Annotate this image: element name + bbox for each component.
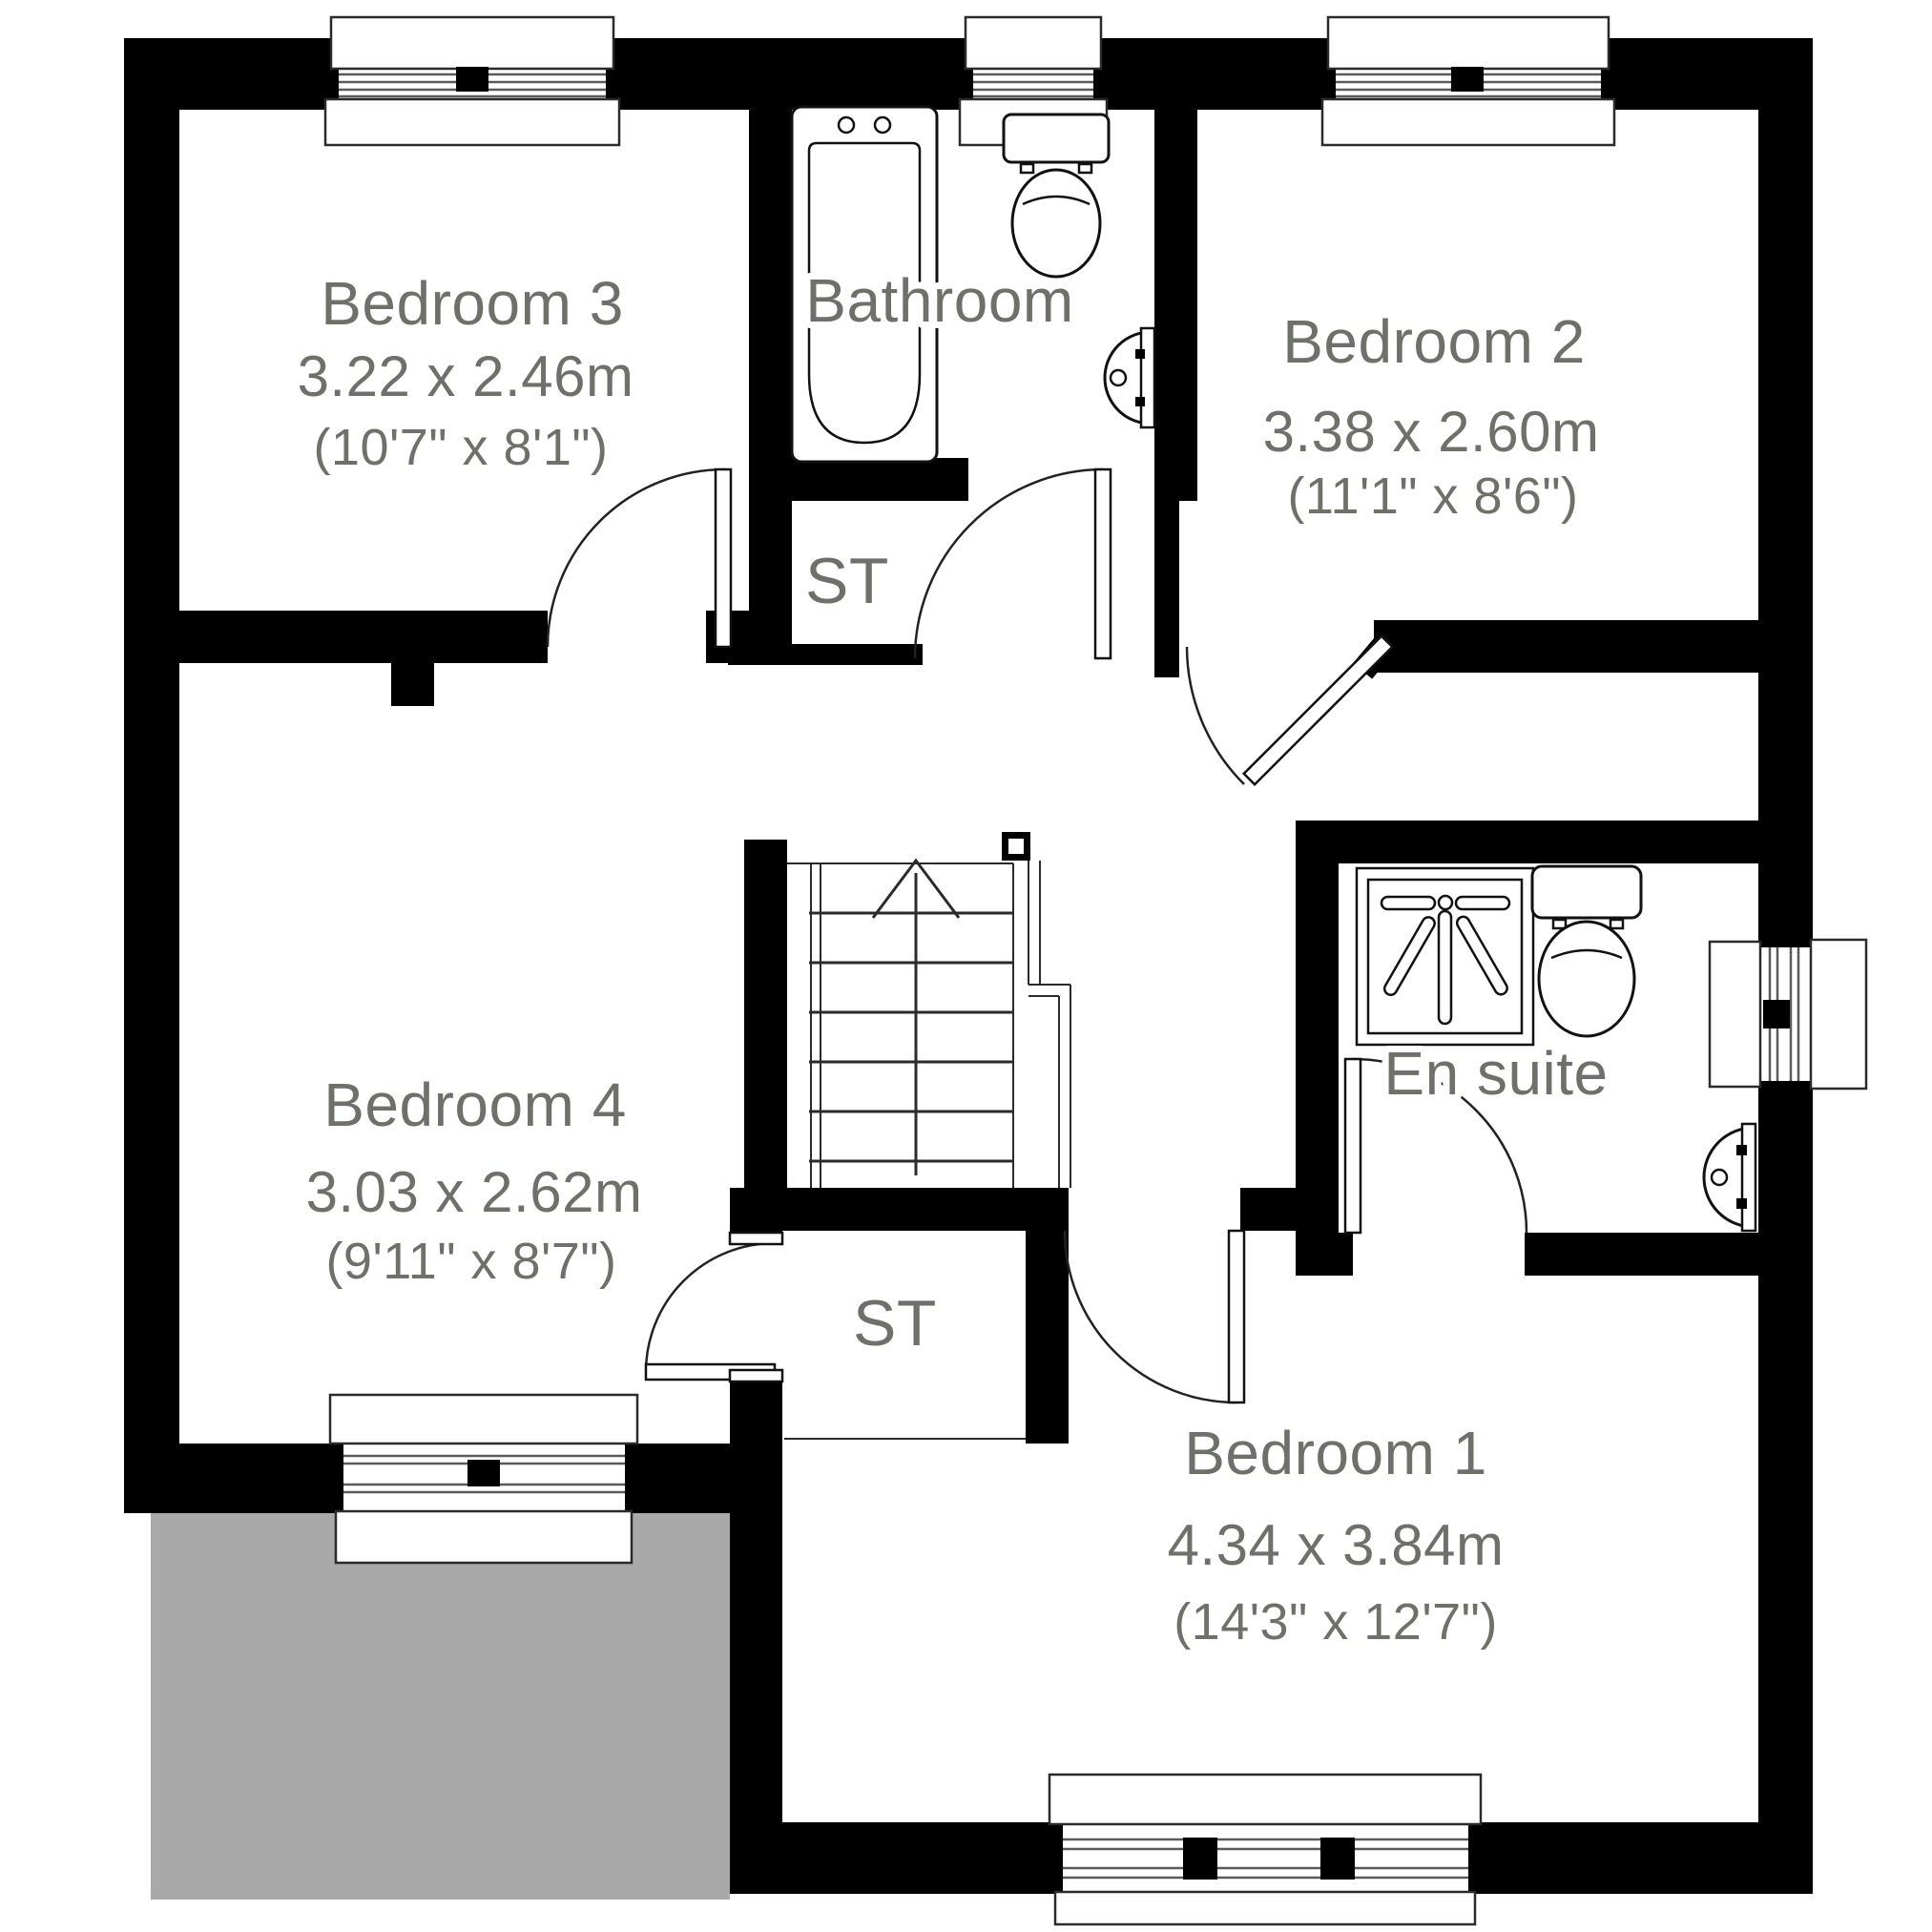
bathroom-label: Bathroom [805,266,1073,335]
bedroom1-metric: 4.34 x 3.84m [1168,1513,1505,1577]
bedroom4-window [330,1395,637,1563]
floor-plan-page: Bedroom 3 3.22 x 2.46m (10'7" x 8'1") Ba… [0,0,1932,1932]
bedroom1-door [1229,1231,1244,1402]
bedroom1-door-arc [1065,1231,1236,1402]
ensuite-toilet-icon [1532,866,1641,1036]
bedroom3-door [716,469,731,647]
bedroom1-label: Bedroom 1 [1184,1419,1487,1487]
bedroom3-window [325,17,619,145]
roof-area [151,1513,730,1900]
ensuite-window [1710,940,1866,1089]
bedroom2-door-arc [1187,647,1244,784]
storage2-label: ST [853,1287,937,1360]
bedroom4-door-arc [646,1243,775,1372]
bedroom3-imperial: (10'7" x 8'1") [313,419,608,476]
ensuite-door [1345,1059,1361,1233]
bathroom-basin-icon [1105,328,1154,427]
bedroom2-imperial: (11'1" x 8'6") [1287,467,1578,525]
bedroom3-door-arc [548,469,725,647]
bedroom3-metric: 3.22 x 2.46m [298,344,634,408]
bathroom-door [1095,469,1111,658]
floor-plan: Bedroom 3 3.22 x 2.46m (10'7" x 8'1") Ba… [0,0,1932,1932]
bedroom2-metric: 3.38 x 2.60m [1263,400,1600,464]
bedroom2-label: Bedroom 2 [1282,307,1586,376]
bathroom-toilet-icon [1004,114,1109,277]
bedroom4-metric: 3.03 x 2.62m [306,1160,643,1224]
bedroom3-label: Bedroom 3 [321,269,624,338]
ensuite-label: En suite [1383,1039,1608,1108]
bedroom1-window [1049,1775,1481,1924]
bedroom2-window [1322,17,1614,145]
bedroom1-imperial: (14'3" x 12'7") [1174,1593,1498,1651]
storage1-label: ST [805,545,889,617]
bedroom2-door [1244,636,1393,785]
bedroom4-label: Bedroom 4 [323,1070,627,1139]
bedroom4-imperial: (9'11" x 8'7") [325,1233,616,1290]
staircase [787,832,1070,1188]
shower-icon [1357,868,1533,1045]
ensuite-basin-icon [1704,1124,1755,1231]
